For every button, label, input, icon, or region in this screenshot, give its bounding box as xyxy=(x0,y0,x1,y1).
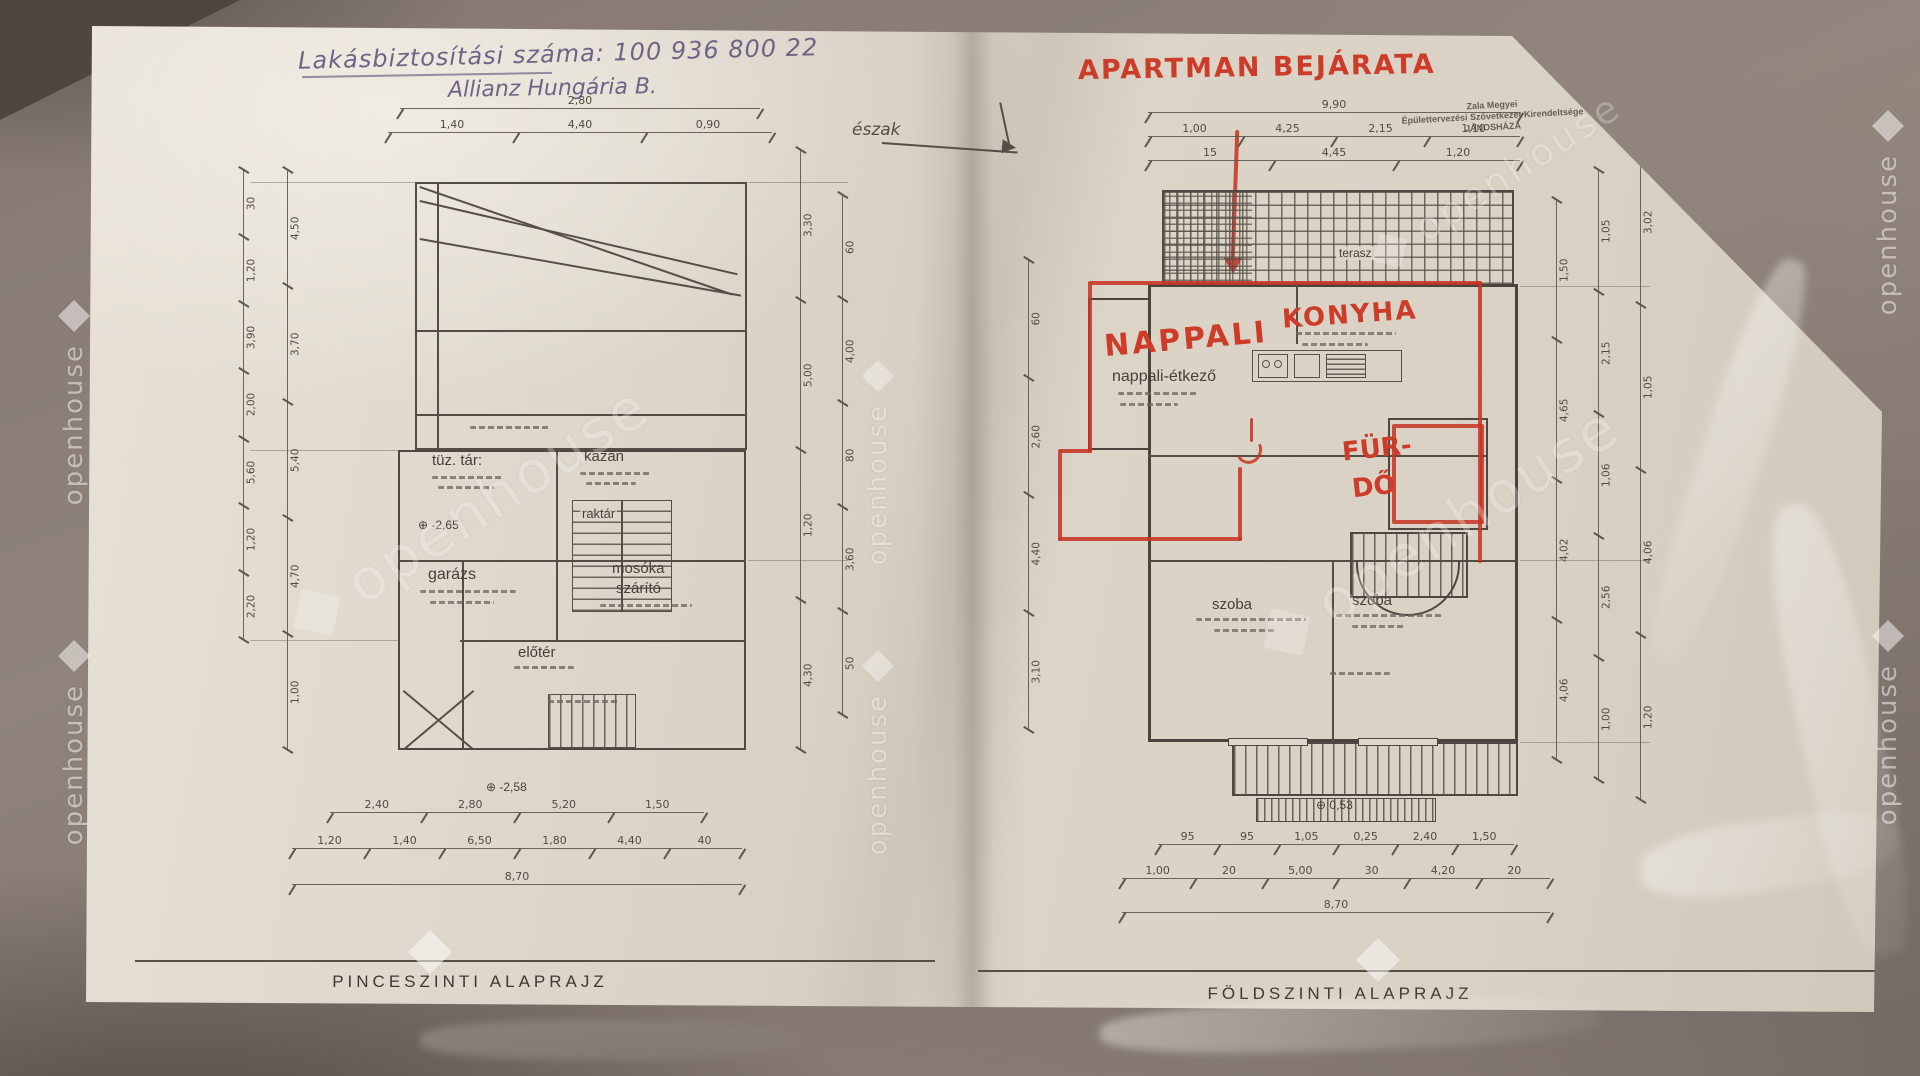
partition xyxy=(460,640,746,642)
watermark-logo xyxy=(862,650,894,682)
dim-value: 1,50 xyxy=(1455,830,1514,844)
terrace-dense-corner xyxy=(1162,190,1252,286)
dim-value: 3,10 xyxy=(1029,613,1044,731)
dim-value: 80 xyxy=(843,403,858,507)
dimension-row: 95951,050,252,401,50 xyxy=(1158,828,1514,845)
extension-line xyxy=(250,450,398,451)
dim-value: 1,40 xyxy=(388,118,516,132)
apartment-entrance-title: APARTMAN BEJÁRATA xyxy=(1078,49,1436,86)
dim-value: 2,40 xyxy=(1395,830,1454,844)
terrace-bottom xyxy=(1232,742,1518,796)
dim-value: 1,00 xyxy=(1148,122,1241,136)
dim-value: 2,56 xyxy=(1599,536,1614,658)
elevation-label: ⊕ -2,58 xyxy=(486,780,527,794)
ramp-divider xyxy=(415,330,747,332)
dim-value: 9,90 xyxy=(1148,98,1520,112)
dim-value: 2,80 xyxy=(400,94,760,108)
dim-value: 5,40 xyxy=(288,402,303,518)
dim-value: 3,90 xyxy=(244,304,259,371)
watermark: openhouse xyxy=(1872,110,1904,315)
dimension-row: 1,00205,00304,2020 xyxy=(1122,862,1550,879)
dim-value: 5,00 xyxy=(1265,864,1336,878)
watermark-logo xyxy=(58,640,90,672)
dim-value: 1,05 xyxy=(1277,830,1336,844)
north-label: észak xyxy=(852,120,901,140)
room-label-szarito: szárító xyxy=(616,580,661,597)
illegible-note xyxy=(548,700,618,703)
watermark-logo xyxy=(1356,938,1400,982)
room-label-mosoka: mosóka xyxy=(612,560,665,577)
dim-value: 20 xyxy=(1479,864,1550,878)
dim-value: 4,06 xyxy=(1557,620,1572,760)
plastic-reflection xyxy=(420,1020,800,1060)
dim-value: 1,05 xyxy=(1599,170,1614,292)
dimension-row: 8,70 xyxy=(1122,896,1550,913)
watermark-logo xyxy=(1872,620,1904,652)
dim-value: 3,60 xyxy=(843,507,858,611)
watermark-text: openhouse xyxy=(59,344,89,505)
dim-value: 2,20 xyxy=(244,573,259,640)
illegible-note xyxy=(420,590,516,593)
caption-rule xyxy=(135,960,935,962)
kitchen-appliance xyxy=(1326,354,1366,378)
illegible-note xyxy=(1118,392,1198,395)
dim-value: 2,60 xyxy=(1029,378,1044,496)
dim-value: 5,00 xyxy=(801,300,816,450)
dim-value: 4,40 xyxy=(1029,495,1044,613)
dim-value: 4,40 xyxy=(592,834,667,848)
room-label-tuztar: tüz. tár: xyxy=(432,452,482,469)
red-outline xyxy=(1058,537,1242,541)
extension-line xyxy=(1520,286,1650,287)
dim-value: 1,20 xyxy=(244,506,259,573)
elevation-label: ⊕ 0,53 xyxy=(1316,798,1353,812)
illegible-note xyxy=(430,601,494,604)
watermark: openhouse xyxy=(862,360,894,565)
red-outline xyxy=(1090,281,1482,285)
extension-line xyxy=(250,182,415,183)
illegible-note xyxy=(1296,332,1396,335)
red-outline xyxy=(1088,281,1092,453)
red-outline xyxy=(1238,467,1242,541)
watermark: openhouse xyxy=(58,640,90,845)
dim-value: 8,70 xyxy=(1122,898,1550,912)
dim-value: 40 xyxy=(667,834,742,848)
dimension-chain: 604,00803,6050 xyxy=(842,195,858,715)
dim-value: 1,80 xyxy=(517,834,592,848)
room-label-furdo-2: DŐ xyxy=(1351,470,1398,504)
stove-burner xyxy=(1262,360,1270,368)
dim-value: 4,40 xyxy=(516,118,644,132)
dim-value: 30 xyxy=(1336,864,1407,878)
dimension-chain: 602,604,403,10 xyxy=(1028,260,1044,730)
watermark-text: openhouse xyxy=(59,684,89,845)
dim-value: 3,02 xyxy=(1641,140,1656,305)
caption-left: PINCESZINTI ALAPRAJZ xyxy=(300,972,640,992)
extension-line xyxy=(748,560,848,561)
dimension-row: 1,004,252,151,10 xyxy=(1148,120,1520,137)
watermark: openhouse xyxy=(58,300,90,505)
caption-rule xyxy=(978,970,1890,972)
ramp-inner-wall xyxy=(437,182,439,450)
dim-value: 5,20 xyxy=(517,798,611,812)
room-label-szoba-1: szoba xyxy=(1212,596,1252,613)
illegible-note xyxy=(586,482,636,485)
dim-value: 4,45 xyxy=(1272,146,1396,160)
dim-value: 60 xyxy=(1029,260,1044,378)
dim-value: 8,70 xyxy=(292,870,742,884)
dimension-chain: 4,503,705,404,701,00 xyxy=(287,170,303,750)
watermark-logo xyxy=(408,930,452,974)
dimension-chain: 1,052,151,062,561,00 xyxy=(1598,170,1614,780)
dim-value: 2,40 xyxy=(330,798,424,812)
dimension-row: 9,90 xyxy=(1148,96,1520,113)
stove-burner xyxy=(1274,360,1282,368)
dim-value: 95 xyxy=(1217,830,1276,844)
handwriting-line-1: Lakásbiztosítási száma: 100 936 800 22 xyxy=(298,33,819,75)
photo-scene: Lakásbiztosítási száma: 100 936 800 22 A… xyxy=(0,0,1920,1076)
dim-value: 4,00 xyxy=(843,299,858,403)
dim-value: 6,50 xyxy=(442,834,517,848)
dim-value: 1,20 xyxy=(801,450,816,600)
dim-value: 20 xyxy=(1193,864,1264,878)
dimension-row: 2,402,805,201,50 xyxy=(330,796,704,813)
dimension-row: 1,201,406,501,804,4040 xyxy=(292,832,742,849)
dim-value: 3,70 xyxy=(288,286,303,402)
dim-value: 30 xyxy=(244,170,259,237)
illegible-note xyxy=(600,604,692,607)
room-label-nappali-etkezo: nappali-étkező xyxy=(1112,368,1216,386)
watermark-text: openhouse xyxy=(863,404,893,565)
dim-value: 1,00 xyxy=(288,634,303,750)
dim-value: 0,25 xyxy=(1336,830,1395,844)
illegible-note xyxy=(1302,343,1368,346)
dimension-chain: 301,203,902,005,601,202,20 xyxy=(243,170,259,640)
dim-value: 1,00 xyxy=(1122,864,1193,878)
dim-value: 4,50 xyxy=(288,170,303,286)
dimension-row: 1,404,400,90 xyxy=(388,116,772,133)
dimension-row: 2,80 xyxy=(400,92,760,109)
dim-value: 2,15 xyxy=(1599,292,1614,414)
watermark-text: openhouse xyxy=(1873,154,1903,315)
dim-value: 1,50 xyxy=(1557,200,1572,340)
paper-sheet: Lakásbiztosítási száma: 100 936 800 22 A… xyxy=(0,0,1920,1076)
dim-value: 4,20 xyxy=(1407,864,1478,878)
dim-value: 2,15 xyxy=(1334,122,1427,136)
dimension-row: 8,70 xyxy=(292,868,742,885)
watermark: openhouse xyxy=(862,650,894,855)
room-label-raktar: raktár xyxy=(580,506,617,521)
extension-line xyxy=(748,182,848,183)
dim-value: 15 xyxy=(1148,146,1272,160)
dim-value: 1,05 xyxy=(1641,305,1656,470)
dim-value: 1,10 xyxy=(1427,122,1520,136)
watermark-logo xyxy=(862,360,894,392)
illegible-note xyxy=(1330,672,1390,675)
dim-value: 4,30 xyxy=(801,600,816,750)
illegible-note xyxy=(1120,403,1178,406)
dim-value: 2,00 xyxy=(244,371,259,438)
dim-value: 1,40 xyxy=(367,834,442,848)
extension-line xyxy=(1520,560,1650,561)
illegible-note xyxy=(1352,625,1406,628)
dim-value: 4,06 xyxy=(1641,470,1656,635)
dimension-chain: 3,305,001,204,30 xyxy=(800,150,816,750)
window xyxy=(1228,738,1308,746)
dim-value: 1,20 xyxy=(244,237,259,304)
dim-value: 4,02 xyxy=(1557,480,1572,620)
dim-value: 50 xyxy=(843,611,858,715)
red-hook-stem xyxy=(1250,418,1253,442)
room-label-eloter: előtér xyxy=(518,644,556,661)
red-outline xyxy=(1060,449,1092,453)
dim-value: 1,50 xyxy=(611,798,705,812)
window xyxy=(1358,738,1438,746)
dimension-row: 154,451,20 xyxy=(1148,144,1520,161)
dimension-chain: 3,021,054,061,20 xyxy=(1640,140,1656,800)
dim-value: 1,00 xyxy=(1599,658,1614,780)
kitchen-sink xyxy=(1294,354,1320,378)
red-outline xyxy=(1058,449,1062,541)
watermark-logo xyxy=(58,300,90,332)
dim-value: 60 xyxy=(843,195,858,299)
dim-value: 1,20 xyxy=(292,834,367,848)
dim-value: 3,30 xyxy=(801,150,816,300)
watermark xyxy=(408,930,452,974)
illegible-note xyxy=(514,666,574,669)
dim-value: 0,90 xyxy=(644,118,772,132)
dim-value: 4,25 xyxy=(1241,122,1334,136)
watermark-text: openhouse xyxy=(863,694,893,855)
watermark-logo xyxy=(1872,110,1904,142)
watermark xyxy=(1356,938,1400,982)
dim-value: 95 xyxy=(1158,830,1217,844)
dim-value: 1,20 xyxy=(1641,635,1656,800)
dim-value: 2,80 xyxy=(424,798,518,812)
extension-line xyxy=(1520,742,1650,743)
dim-value: 5,60 xyxy=(244,439,259,506)
